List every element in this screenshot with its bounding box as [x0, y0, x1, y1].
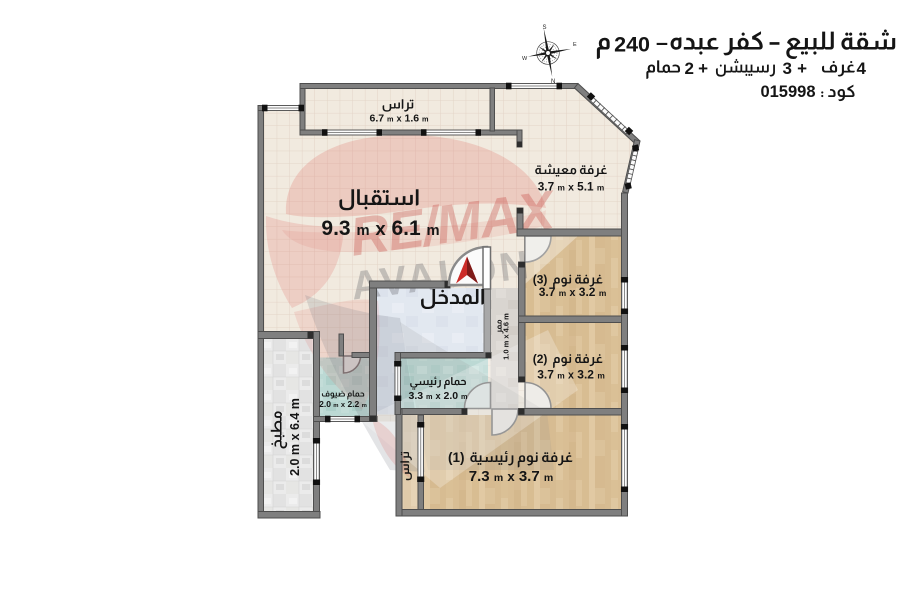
- svg-text:S: S: [543, 25, 547, 31]
- svg-text:+: +: [698, 59, 708, 78]
- svg-text:(1): (1): [448, 450, 465, 465]
- svg-text:240: 240: [614, 33, 650, 57]
- svg-text:7.3 m x 3.7 m: 7.3 m x 3.7 m: [469, 468, 553, 485]
- svg-text:N: N: [551, 79, 555, 85]
- svg-text:3.7 m x 3.2 m: 3.7 m x 3.2 m: [539, 285, 607, 299]
- svg-text:E: E: [573, 42, 577, 48]
- svg-text:3.3 m x 2.0 m: 3.3 m x 2.0 m: [409, 390, 469, 402]
- svg-text:4: 4: [857, 59, 867, 78]
- svg-text:015998: 015998: [760, 83, 815, 101]
- svg-text:2.0 m x 6.4 m: 2.0 m x 6.4 m: [288, 398, 302, 476]
- svg-text:(2): (2): [533, 352, 548, 366]
- svg-text:+: +: [797, 59, 807, 78]
- svg-text:3: 3: [783, 59, 792, 78]
- svg-text:2: 2: [685, 59, 694, 78]
- svg-text:2.0 m x 2.2 m: 2.0 m x 2.2 m: [319, 399, 367, 409]
- svg-text:6.7 m x 1.6 m: 6.7 m x 1.6 m: [370, 113, 430, 125]
- svg-text:3.7 m x 5.1 m: 3.7 m x 5.1 m: [538, 180, 605, 194]
- svg-text:3.7 m x 3.2 m: 3.7 m x 3.2 m: [537, 368, 605, 382]
- svg-text:1.0 m x 4.6 m: 1.0 m x 4.6 m: [502, 313, 511, 360]
- svg-text:W: W: [522, 56, 528, 62]
- svg-text:9.3 m x 6.1 m: 9.3 m x 6.1 m: [321, 217, 439, 240]
- svg-text:–: –: [656, 31, 668, 55]
